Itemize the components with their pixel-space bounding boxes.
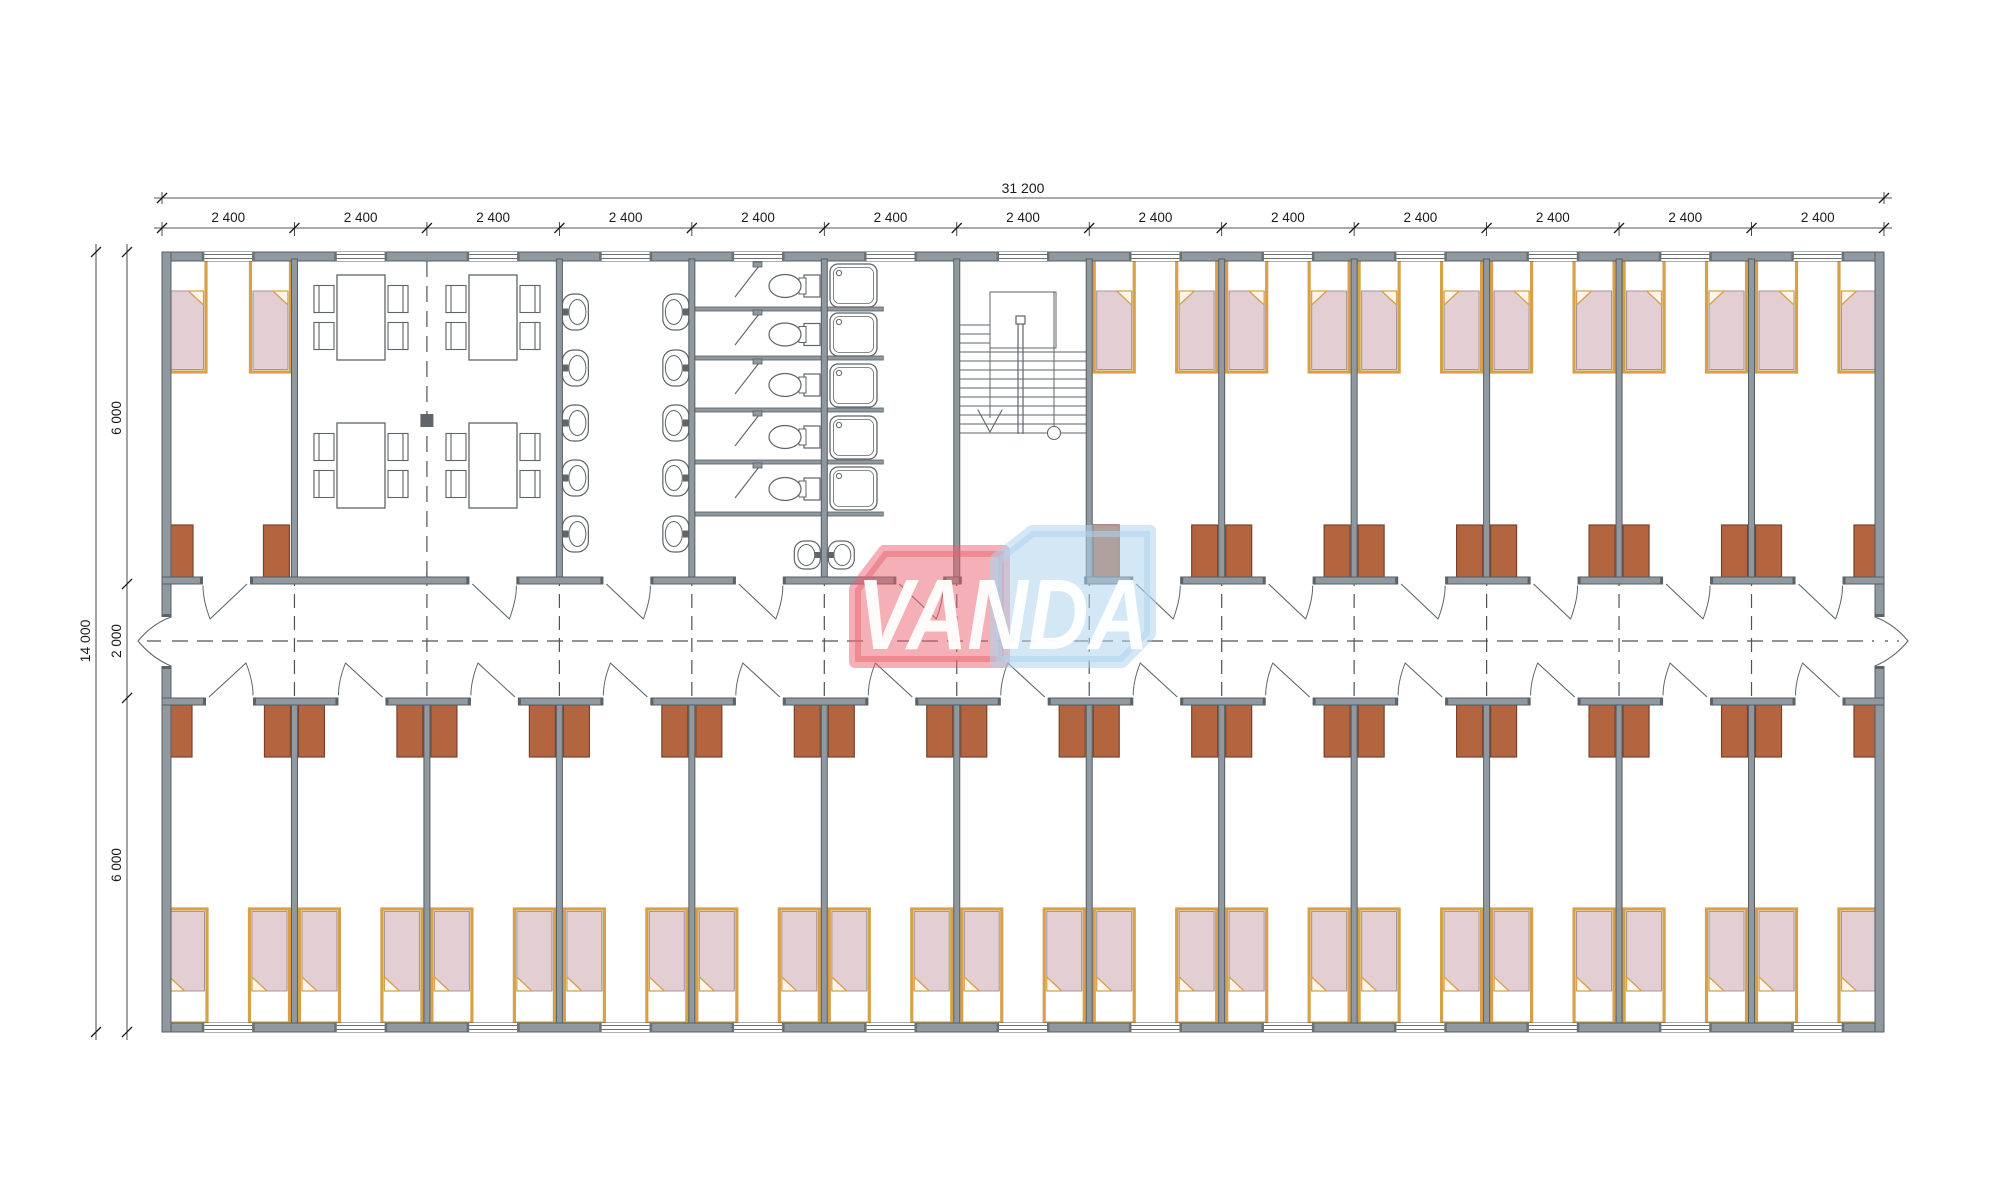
- dimension-label: 2 400: [741, 210, 775, 225]
- window-icon: [202, 252, 255, 261]
- basin-icon: [562, 294, 588, 330]
- dimension-label: 2 400: [874, 210, 908, 225]
- locker-icon: [264, 705, 290, 757]
- bed-icon: [1177, 258, 1217, 372]
- dimension-label: 2 400: [1536, 210, 1570, 225]
- bed-icon: [697, 909, 737, 1023]
- room-bedroom-bottom: [1491, 705, 1615, 1023]
- bed-icon: [1624, 258, 1664, 372]
- chair-icon: [446, 323, 466, 350]
- shower-tray-icon: [830, 313, 877, 356]
- locker-icon: [1324, 705, 1350, 757]
- locker-icon: [696, 705, 722, 757]
- locker-icon: [1226, 525, 1252, 577]
- basin-icon: [562, 350, 588, 386]
- shower-tray-icon: [830, 264, 877, 307]
- shower-tray-icon: [830, 416, 877, 459]
- window-icon: [732, 1023, 785, 1032]
- locker-icon: [1756, 525, 1782, 577]
- locker-icon: [662, 705, 688, 757]
- table-icon: [469, 423, 517, 508]
- door-swing-icon: [472, 584, 516, 619]
- entrance-door-icon: [1874, 614, 1908, 669]
- bed-icon: [1492, 909, 1532, 1023]
- dimension-label: 2 400: [1403, 210, 1437, 225]
- bed-icon: [1309, 258, 1349, 372]
- room-bedroom-bottom: [828, 705, 952, 1023]
- chair-icon: [520, 323, 540, 350]
- basin-icon: [663, 294, 689, 330]
- stairs-icon: [960, 292, 1087, 440]
- locker-icon: [1589, 525, 1615, 577]
- bed-icon: [1707, 258, 1747, 372]
- chair-icon: [314, 434, 334, 461]
- room-washroom: [562, 294, 688, 552]
- locker-icon: [563, 705, 589, 757]
- window-icon: [334, 252, 387, 261]
- locker-icon: [961, 705, 987, 757]
- basin-icon: [663, 460, 689, 496]
- basin-icon: [663, 516, 689, 552]
- door-swing-icon: [209, 663, 253, 697]
- locker-icon: [1457, 705, 1483, 757]
- bed-icon: [1492, 258, 1532, 372]
- dimension-label: 2 400: [1668, 210, 1702, 225]
- room-bedroom-bottom: [1756, 705, 1880, 1023]
- door-swing-icon: [1269, 584, 1313, 619]
- bed-icon: [1359, 258, 1399, 372]
- locker-icon: [1358, 525, 1384, 577]
- room-bedroom-bottom: [431, 705, 555, 1023]
- door-swing-icon: [735, 359, 762, 394]
- bed-icon: [1227, 258, 1267, 372]
- window-icon: [1791, 252, 1844, 261]
- locker-icon: [794, 705, 820, 757]
- locker-icon: [1623, 525, 1649, 577]
- toilet-icon: [769, 275, 820, 298]
- dimension-label: 31 200: [1002, 180, 1045, 196]
- locker-icon: [1192, 525, 1218, 577]
- locker-icon: [1324, 525, 1350, 577]
- chair-icon: [314, 471, 334, 498]
- room-bedroom-top: [1358, 258, 1482, 577]
- logo-text: VANDA: [857, 559, 1149, 671]
- room-bedroom-bottom: [166, 705, 290, 1023]
- window-icon: [1261, 1023, 1314, 1032]
- window-icon: [996, 252, 1049, 261]
- dimension-label: 2 400: [1006, 210, 1040, 225]
- locker-icon: [1093, 705, 1119, 757]
- window-icon: [1659, 252, 1712, 261]
- bed-icon: [1839, 909, 1879, 1023]
- room-bedroom-bottom: [1623, 705, 1747, 1023]
- bed-icon: [1177, 909, 1217, 1023]
- bed-icon: [249, 909, 289, 1023]
- basin-icon: [794, 541, 820, 569]
- dimension-label: 2 400: [1801, 210, 1835, 225]
- room-bedroom-top: [1756, 258, 1880, 577]
- room-bedroom-bottom: [1358, 705, 1482, 1023]
- bed-icon: [1574, 258, 1614, 372]
- locker-icon: [1457, 525, 1483, 577]
- room-bedroom-top-corner: [166, 258, 290, 577]
- window-icon: [1526, 1023, 1579, 1032]
- chair-icon: [388, 434, 408, 461]
- dimension-label: 2 400: [1139, 210, 1173, 225]
- chair-icon: [388, 286, 408, 313]
- basin-icon: [562, 460, 588, 496]
- shower-tray-icon: [830, 364, 877, 407]
- basin-icon: [562, 405, 588, 441]
- locker-icon: [1226, 705, 1252, 757]
- bed-icon: [1757, 258, 1797, 372]
- door-swing-icon: [606, 584, 650, 619]
- door-swing-icon: [203, 584, 247, 619]
- door-swing-icon: [1531, 663, 1575, 697]
- chair-icon: [446, 434, 466, 461]
- bed-icon: [1309, 909, 1349, 1023]
- window-icon: [599, 252, 652, 261]
- door-swing-icon: [1663, 663, 1707, 697]
- toilet-icon: [769, 426, 820, 449]
- door-swing-icon: [471, 663, 515, 697]
- door-swing-icon: [735, 262, 762, 297]
- locker-icon: [263, 525, 289, 577]
- chair-icon: [520, 471, 540, 498]
- locker-icon: [1756, 705, 1782, 757]
- dimension-label: 2 400: [476, 210, 510, 225]
- room-bedroom-bottom: [961, 705, 1085, 1023]
- dimension-label: 2 400: [344, 210, 378, 225]
- window-icon: [334, 1023, 387, 1032]
- door-swing-icon: [603, 663, 647, 697]
- bed-icon: [1707, 909, 1747, 1023]
- dimension-label: 6 000: [109, 848, 124, 882]
- basin-icon: [562, 516, 588, 552]
- bed-icon: [1574, 909, 1614, 1023]
- dimension-label: 2 000: [109, 624, 124, 658]
- window-icon: [864, 252, 917, 261]
- room-bedroom-top: [1623, 258, 1747, 577]
- locker-icon: [927, 705, 953, 757]
- dimension-label: 2 400: [1271, 210, 1305, 225]
- vanda-logo: VANDA: [855, 531, 1150, 671]
- bed-icon: [1442, 258, 1482, 372]
- bed-icon: [779, 909, 819, 1023]
- bed-icon: [514, 909, 554, 1023]
- locker-icon: [298, 705, 324, 757]
- dimension-label: 2 400: [609, 210, 643, 225]
- window-icon: [1394, 1023, 1447, 1032]
- window-icon: [732, 252, 785, 261]
- room-wc: [695, 262, 821, 516]
- chair-icon: [446, 286, 466, 313]
- door-swing-icon: [1799, 584, 1843, 619]
- bed-icon: [1839, 258, 1879, 372]
- bed-icon: [1227, 909, 1267, 1023]
- door-swing-icon: [1666, 584, 1710, 619]
- dimension-top-bar: 31 2002 4002 4002 4002 4002 4002 4002 40…: [154, 180, 1892, 236]
- bed-icon: [962, 909, 1002, 1023]
- locker-icon: [431, 705, 457, 757]
- locker-icon: [1358, 705, 1384, 757]
- chair-icon: [314, 323, 334, 350]
- bed-icon: [1359, 909, 1399, 1023]
- door-swing-icon: [735, 463, 762, 498]
- window-icon: [1261, 252, 1314, 261]
- bed-icon: [432, 909, 472, 1023]
- room-bedroom-bottom: [298, 705, 422, 1023]
- toilet-icon: [769, 323, 820, 346]
- window-icon: [467, 1023, 520, 1032]
- room-bedroom-bottom: [563, 705, 687, 1023]
- table-icon: [469, 275, 517, 360]
- locker-icon: [1491, 705, 1517, 757]
- window-icon: [202, 1023, 255, 1032]
- locker-icon: [828, 705, 854, 757]
- room-bedroom-bottom: [696, 705, 820, 1023]
- dimension-label: 2 400: [211, 210, 245, 225]
- basin-icon: [663, 350, 689, 386]
- locker-icon: [1192, 705, 1218, 757]
- locker-icon: [1722, 705, 1748, 757]
- locker-icon: [397, 705, 423, 757]
- locker-icon: [1722, 525, 1748, 577]
- bed-icon: [299, 909, 339, 1023]
- window-icon: [864, 1023, 917, 1032]
- basin-icon: [828, 541, 854, 569]
- locker-icon: [1589, 705, 1615, 757]
- bed-icon: [647, 909, 687, 1023]
- bed-icon: [829, 909, 869, 1023]
- bed-icon: [382, 909, 422, 1023]
- room-bedroom-bottom: [1093, 705, 1217, 1023]
- room-bedroom-top: [1226, 258, 1350, 577]
- door-swing-icon: [735, 310, 762, 345]
- dimension-left-bar: 14 0006 0002 0006 000: [77, 244, 132, 1040]
- window-icon: [996, 1023, 1049, 1032]
- locker-icon: [1491, 525, 1517, 577]
- door-swing-icon: [1266, 663, 1310, 697]
- table-icon: [337, 423, 385, 508]
- chair-icon: [520, 286, 540, 313]
- dimension-label: 14 000: [77, 619, 93, 662]
- window-icon: [1791, 1023, 1844, 1032]
- locker-icon: [1059, 705, 1085, 757]
- bed-icon: [1044, 909, 1084, 1023]
- room-bedroom-top: [1491, 258, 1615, 577]
- door-swing-icon: [1398, 663, 1442, 697]
- door-swing-icon: [338, 663, 382, 697]
- door-swing-icon: [736, 663, 780, 697]
- locker-icon: [529, 705, 555, 757]
- chair-icon: [520, 434, 540, 461]
- chair-icon: [388, 471, 408, 498]
- door-swing-icon: [735, 411, 762, 446]
- door-swing-icon: [739, 584, 783, 619]
- locker-icon: [1623, 705, 1649, 757]
- chair-icon: [314, 286, 334, 313]
- window-icon: [1526, 252, 1579, 261]
- chair-icon: [446, 471, 466, 498]
- bed-icon: [564, 909, 604, 1023]
- floor-plan-svg: 31 2002 4002 4002 4002 4002 4002 4002 40…: [0, 0, 2000, 1200]
- bed-icon: [166, 258, 206, 372]
- window-icon: [1659, 1023, 1712, 1032]
- window-icon: [599, 1023, 652, 1032]
- bed-icon: [1094, 258, 1134, 372]
- dimension-label: 6 000: [109, 401, 124, 435]
- toilet-icon: [769, 478, 820, 501]
- room-stairwell: [960, 292, 1087, 440]
- room-bedroom-bottom: [1226, 705, 1350, 1023]
- bed-icon: [250, 258, 290, 372]
- window-icon: [1129, 252, 1182, 261]
- toilet-icon: [769, 374, 820, 397]
- window-icon: [1129, 1023, 1182, 1032]
- window-icon: [1394, 252, 1447, 261]
- table-icon: [337, 275, 385, 360]
- floor-plan-page: 31 2002 4002 4002 4002 4002 4002 4002 40…: [0, 0, 2000, 1200]
- chair-icon: [388, 323, 408, 350]
- bed-icon: [167, 909, 207, 1023]
- bed-icon: [1442, 909, 1482, 1023]
- bed-icon: [1757, 909, 1797, 1023]
- bed-icon: [912, 909, 952, 1023]
- door-swing-icon: [1534, 584, 1578, 619]
- bed-icon: [1094, 909, 1134, 1023]
- door-swing-icon: [1401, 584, 1445, 619]
- bed-icon: [1624, 909, 1664, 1023]
- shower-tray-icon: [830, 467, 877, 510]
- basin-icon: [663, 405, 689, 441]
- door-swing-icon: [1796, 663, 1840, 697]
- window-icon: [467, 252, 520, 261]
